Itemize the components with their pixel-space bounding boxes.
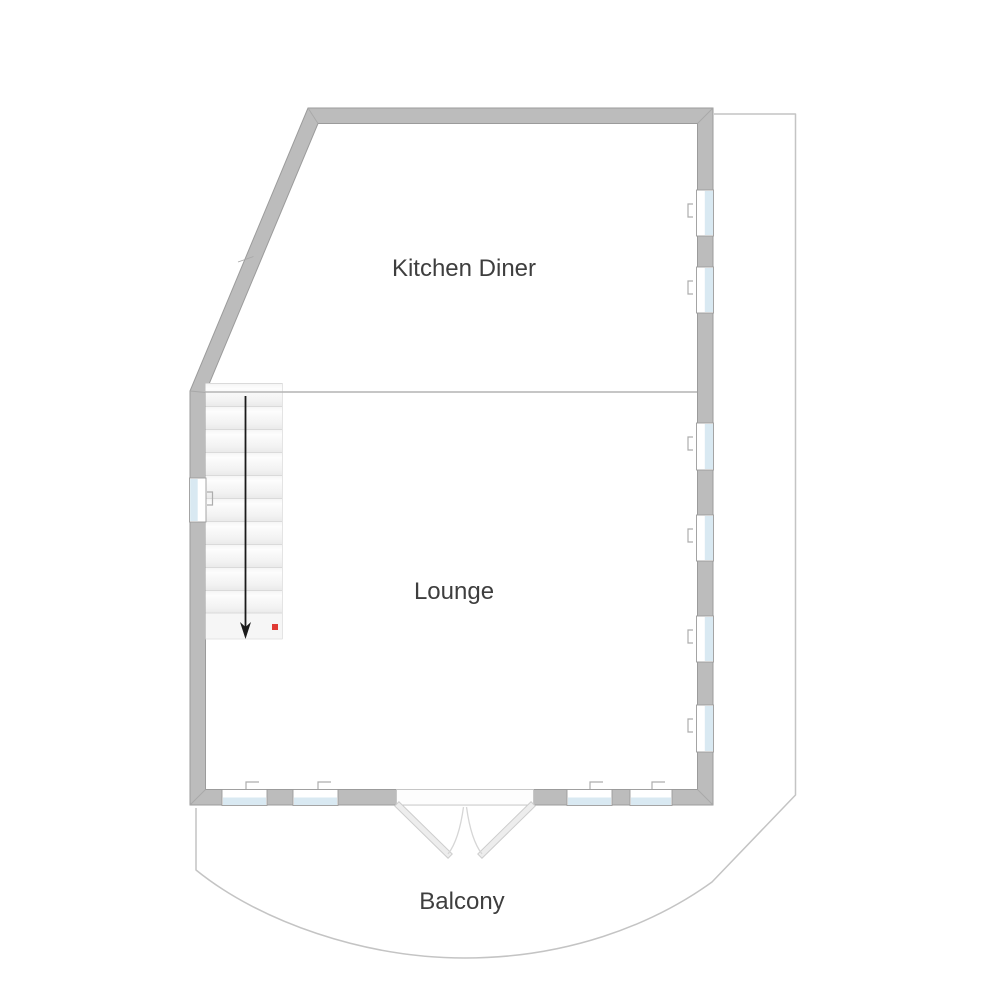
stairs-marker <box>272 624 278 630</box>
window-handle-icon <box>246 782 259 789</box>
window <box>688 423 714 470</box>
window <box>688 616 714 662</box>
area-label-balcony: Balcony <box>419 888 504 915</box>
room-label-lounge: Lounge <box>414 578 494 605</box>
window <box>688 705 714 752</box>
window-handle-icon <box>688 437 693 450</box>
stair-treads <box>206 383 283 613</box>
window-handle-icon <box>652 782 665 789</box>
window-handle-icon <box>688 719 693 732</box>
window <box>567 782 612 806</box>
window-handle-icon <box>318 782 331 789</box>
floorplan-drawing: Kitchen Diner Lounge Balcony <box>0 0 1000 1000</box>
window <box>688 515 714 561</box>
floorplan-canvas: Kitchen Diner Lounge Balcony <box>0 0 1000 1000</box>
door-leaf-left-face <box>399 806 448 854</box>
window-handle-icon <box>688 630 693 643</box>
window-handle-icon <box>688 204 693 217</box>
window <box>688 190 714 236</box>
door-swing-arc-left <box>448 807 464 854</box>
window <box>630 782 672 806</box>
room-label-kitchen-diner: Kitchen Diner <box>392 255 536 282</box>
window-handle-icon <box>688 281 693 294</box>
window-handle-icon <box>590 782 603 789</box>
french-doors <box>397 790 534 855</box>
door-threshold <box>397 790 534 806</box>
window <box>688 267 714 313</box>
window <box>293 782 338 806</box>
staircase <box>206 383 283 639</box>
door-leaf-right-face <box>482 806 531 854</box>
door-swing-arc-right <box>467 807 483 854</box>
window-handle-icon <box>688 529 693 542</box>
window <box>222 782 267 806</box>
